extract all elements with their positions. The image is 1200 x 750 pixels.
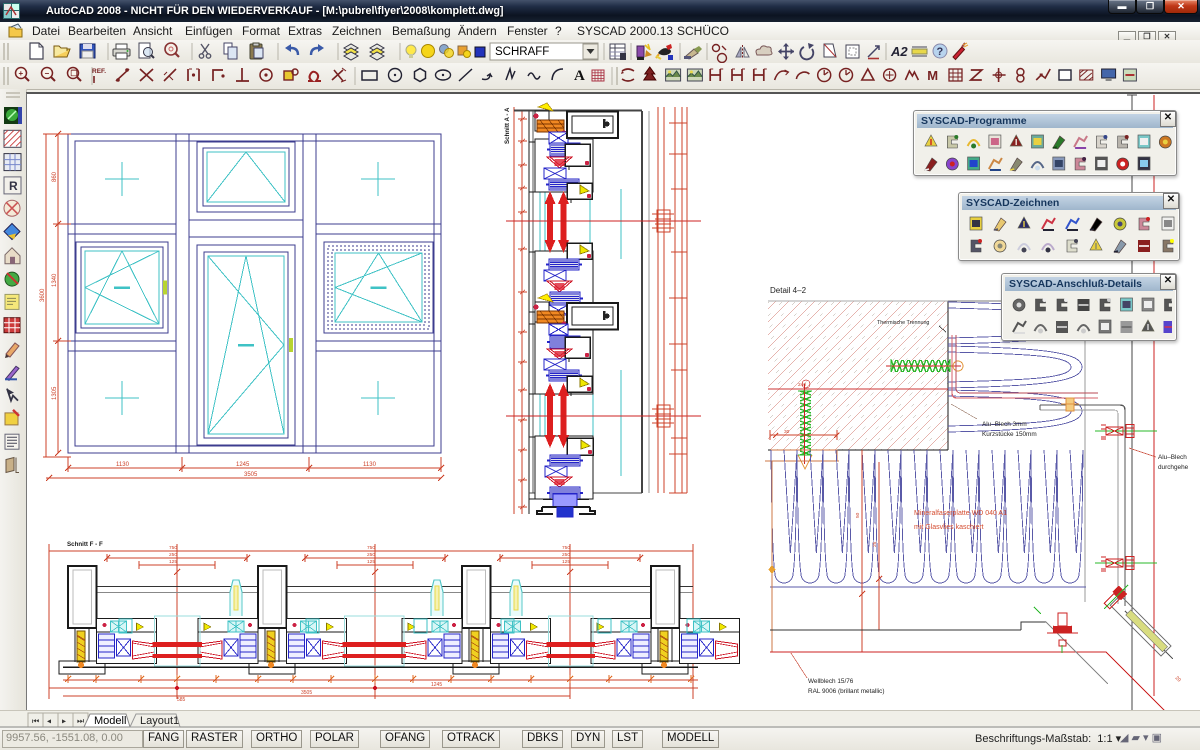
svg-text:durchgehe: durchgehe: [1158, 464, 1189, 471]
svg-text:⏭: ⏭: [77, 717, 84, 726]
svg-text:▸: ▸: [62, 717, 66, 726]
svg-text:mit Glasvlies kaschiert: mit Glasvlies kaschiert: [914, 524, 984, 531]
svg-text:RAL 9006 (brillant metallic: RAL 9006 (brillant metallic): [808, 688, 884, 695]
svg-text:R: R: [9, 179, 18, 193]
svg-text:Layout1: Layout1: [140, 715, 179, 727]
svg-text:−: −: [45, 69, 50, 78]
svg-text:SCHRAFF: SCHRAFF: [495, 46, 549, 58]
svg-text:REF.: REF.: [92, 68, 106, 75]
svg-text:+: +: [19, 69, 24, 78]
svg-text:125: 125: [169, 559, 177, 565]
svg-text:125: 125: [562, 559, 570, 565]
svg-text:585: 585: [177, 697, 186, 703]
svg-text:1245: 1245: [236, 462, 250, 468]
svg-text:Schnitt A - A: Schnitt A - A: [504, 107, 511, 144]
svg-text:20: 20: [1174, 675, 1182, 683]
svg-text:1245: 1245: [431, 682, 442, 688]
svg-text:750: 750: [367, 545, 375, 551]
svg-text:30: 30: [784, 429, 790, 435]
svg-text:Alu–Blech: Alu–Blech: [1158, 454, 1187, 461]
svg-text:250: 250: [562, 552, 570, 558]
svg-text:1305: 1305: [52, 386, 58, 400]
svg-text:A: A: [574, 68, 585, 84]
svg-text:M: M: [927, 68, 938, 83]
svg-text:3505: 3505: [244, 472, 258, 478]
svg-text:250: 250: [169, 552, 177, 558]
svg-text:❐: ❐: [71, 69, 78, 78]
svg-text:◂: ◂: [47, 717, 51, 726]
svg-text:3505: 3505: [301, 690, 312, 696]
svg-text:750: 750: [562, 545, 570, 551]
svg-text:3600: 3600: [40, 288, 46, 302]
svg-text:?: ?: [937, 46, 944, 58]
svg-text:1130: 1130: [116, 462, 130, 468]
svg-text:Wellblech 15/76: Wellblech 15/76: [808, 678, 854, 685]
svg-text:1130: 1130: [363, 462, 377, 468]
svg-text:25: 25: [872, 541, 878, 547]
svg-text:Schnitt F - F: Schnitt F - F: [67, 541, 103, 548]
svg-text:50: 50: [855, 512, 861, 518]
svg-text:Detail 4–2: Detail 4–2: [770, 286, 807, 295]
svg-text:Thermische Trennung: Thermische Trennung: [877, 320, 929, 326]
svg-text:750: 750: [169, 545, 177, 551]
svg-text:Alu–Blech 3mm: Alu–Blech 3mm: [982, 421, 1027, 428]
svg-text:A2: A2: [890, 44, 908, 59]
svg-text:1340: 1340: [52, 273, 58, 287]
svg-text:Mineralfaserplatte WD 040 A: Mineralfaserplatte WD 040 A1: [914, 510, 1007, 517]
svg-text:125: 125: [367, 559, 375, 565]
svg-text:Modell: Modell: [94, 715, 126, 727]
svg-text:⏮: ⏮: [32, 717, 39, 726]
svg-text:Kurzstücke 150mm: Kurzstücke 150mm: [982, 431, 1037, 438]
svg-text:250: 250: [367, 552, 375, 558]
svg-text:860: 860: [52, 171, 58, 182]
